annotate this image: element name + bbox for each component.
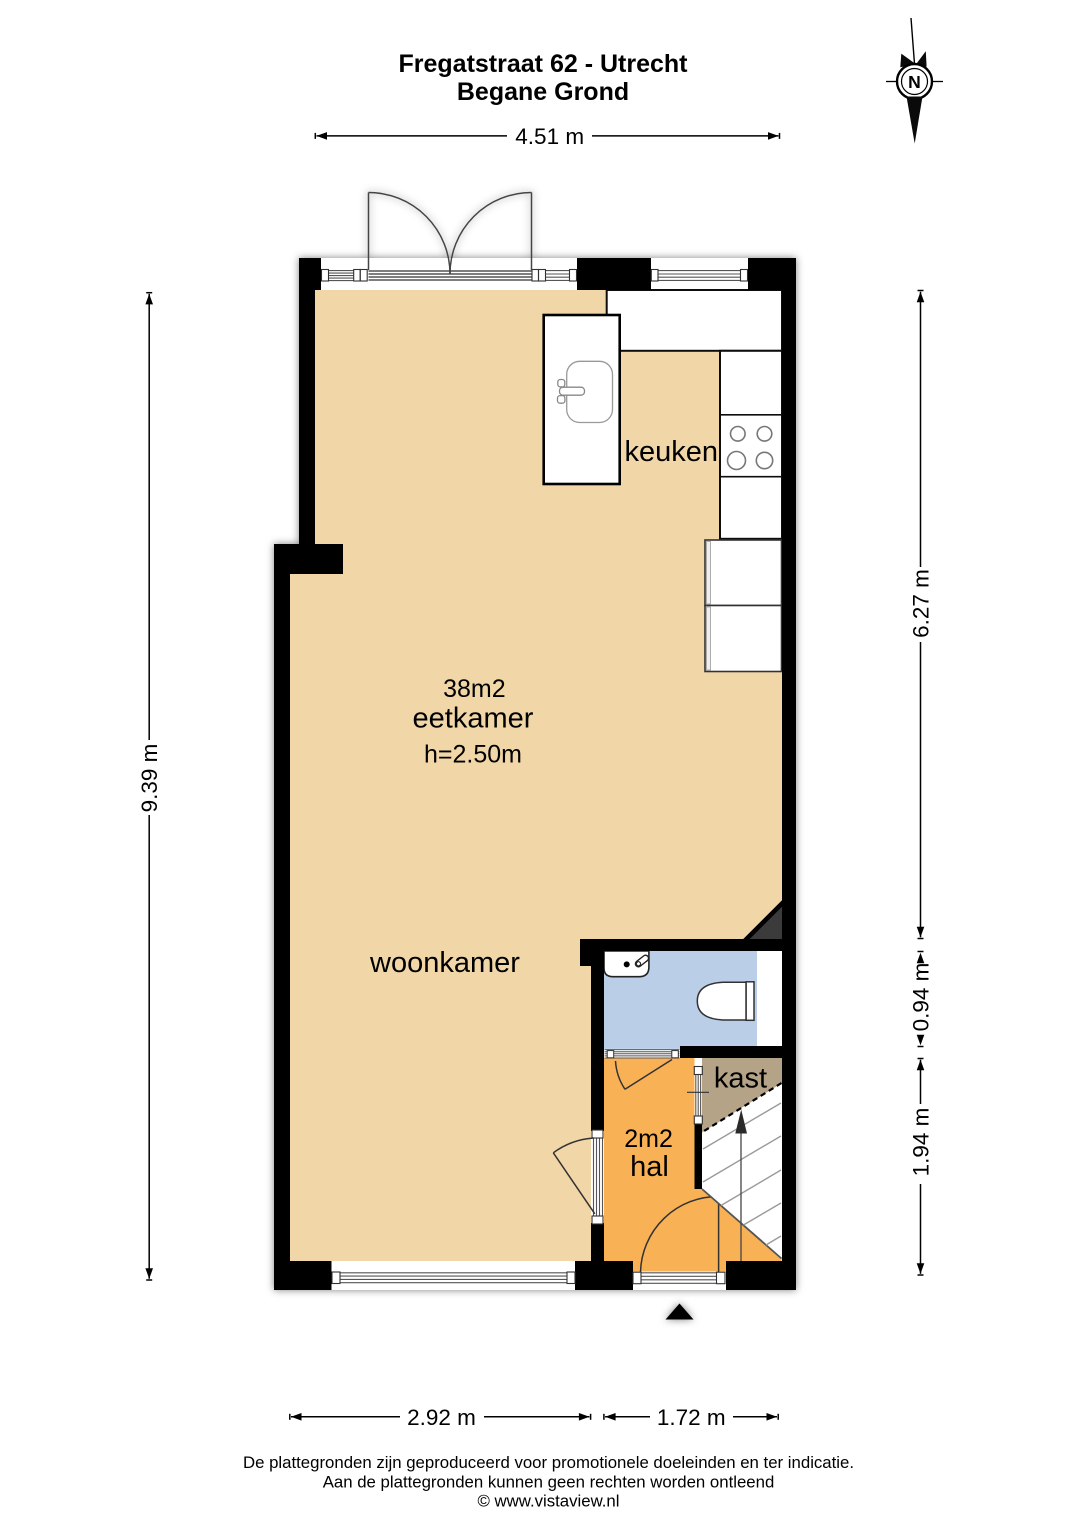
svg-text:Begane Grond: Begane Grond	[457, 78, 629, 106]
svg-text:Aan de plattegronden kunnen ge: Aan de plattegronden kunnen geen rechten…	[323, 1473, 775, 1492]
svg-text:9.39 m: 9.39 m	[137, 744, 162, 813]
svg-text:4.51 m: 4.51 m	[515, 124, 584, 149]
svg-text:2.92 m: 2.92 m	[407, 1405, 476, 1430]
svg-text:De plattegronden zijn geproduc: De plattegronden zijn geproduceerd voor …	[243, 1453, 854, 1472]
svg-text:h=2.50m: h=2.50m	[424, 741, 522, 769]
svg-text:hal: hal	[630, 1151, 669, 1183]
svg-text:kast: kast	[714, 1063, 767, 1095]
svg-text:© www.vistaview.nl: © www.vistaview.nl	[478, 1492, 620, 1511]
svg-text:N: N	[908, 72, 921, 92]
svg-text:Fregatstraat 62 - Utrecht: Fregatstraat 62 - Utrecht	[399, 50, 689, 78]
svg-text:2m2: 2m2	[624, 1125, 673, 1153]
svg-text:keuken: keuken	[625, 436, 719, 468]
svg-text:1.94 m: 1.94 m	[909, 1108, 934, 1177]
svg-text:6.27 m: 6.27 m	[909, 569, 934, 638]
svg-text:1.72 m: 1.72 m	[657, 1405, 726, 1430]
svg-text:eetkamer: eetkamer	[413, 703, 534, 735]
svg-text:0.94 m: 0.94 m	[909, 963, 934, 1032]
svg-text:38m2: 38m2	[443, 675, 506, 703]
svg-text:woonkamer: woonkamer	[369, 947, 520, 979]
